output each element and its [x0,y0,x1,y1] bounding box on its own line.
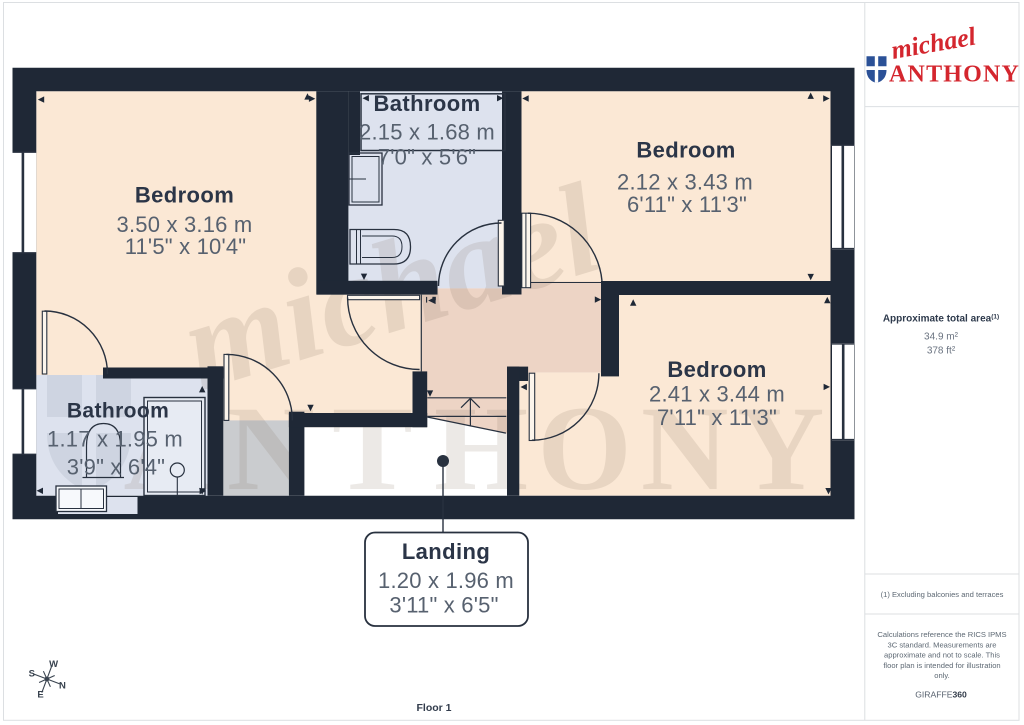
svg-text:2.12 x 3.43 m: 2.12 x 3.43 m [617,170,753,195]
svg-text:2.41 x 3.44 m: 2.41 x 3.44 m [649,382,785,407]
svg-text:7'0" x 5'6": 7'0" x 5'6" [378,145,476,170]
svg-text:approximate and not to scale.: approximate and not to scale. This [884,651,1000,660]
svg-text:Bathroom: Bathroom [67,400,169,423]
svg-text:floor plan is intended for ill: floor plan is intended for illustration [883,661,1000,670]
svg-text:Calculations reference the RIC: Calculations reference the RICS IPMS [877,630,1006,639]
svg-text:S: S [29,669,35,680]
svg-text:N: N [59,681,66,692]
svg-text:E: E [37,690,43,701]
svg-text:ANTHONY: ANTHONY [889,62,1020,88]
svg-text:Approximate total area(1): Approximate total area(1) [883,314,999,325]
svg-text:3'9" x 6'4": 3'9" x 6'4" [67,455,165,480]
svg-text:6'11" x 11'3": 6'11" x 11'3" [627,192,747,217]
svg-text:Landing: Landing [402,539,490,564]
svg-text:378 ft²: 378 ft² [927,346,956,357]
svg-text:3'11" x 6'5": 3'11" x 6'5" [389,593,498,618]
svg-text:7'11" x 11'3": 7'11" x 11'3" [657,405,777,430]
svg-text:1.20 x 1.96 m: 1.20 x 1.96 m [378,568,514,593]
svg-text:Bedroom: Bedroom [667,357,766,382]
svg-text:2.15 x 1.68 m: 2.15 x 1.68 m [359,120,495,145]
svg-text:only.: only. [934,671,949,680]
svg-text:Bedroom: Bedroom [135,183,234,208]
svg-text:1.17 x 1.95 m: 1.17 x 1.95 m [47,427,183,452]
svg-text:GIRAFFE360: GIRAFFE360 [915,690,967,700]
svg-text:Bathroom: Bathroom [373,91,480,116]
svg-text:W: W [49,659,58,670]
svg-text:11'5" x 10'4": 11'5" x 10'4" [125,234,247,259]
svg-text:Floor 1: Floor 1 [416,702,451,714]
svg-text:34.9 m²: 34.9 m² [924,332,959,343]
svg-text:3C standard. Measurements are: 3C standard. Measurements are [888,640,997,649]
svg-text:(1) Excluding balconies and te: (1) Excluding balconies and terraces [881,590,1004,599]
svg-text:Bedroom: Bedroom [636,138,735,163]
